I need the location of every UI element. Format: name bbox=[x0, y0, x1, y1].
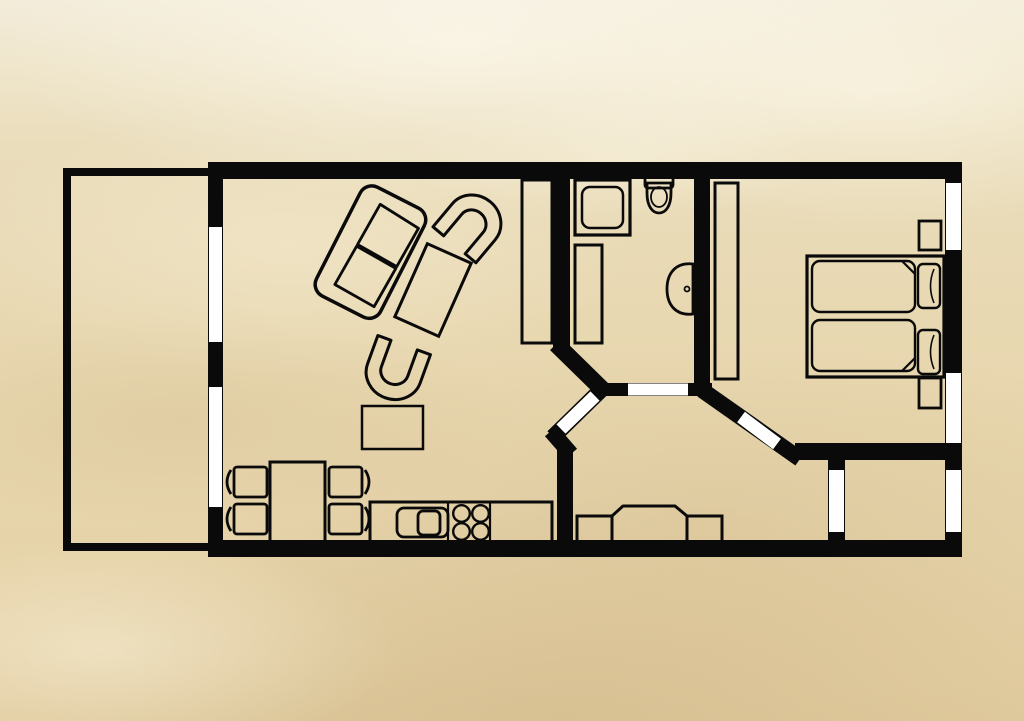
bedroom-storage-wall bbox=[795, 443, 962, 460]
bed-blanket-1 bbox=[812, 261, 915, 312]
bedroom-window-1 bbox=[946, 183, 961, 250]
sofa-cushion-1 bbox=[357, 203, 421, 267]
interior-walls bbox=[551, 162, 962, 550]
dining-chair-2 bbox=[234, 504, 267, 534]
balcony-bottom-wall bbox=[63, 543, 208, 551]
dining-chair-1 bbox=[234, 467, 267, 497]
stove-burner-3 bbox=[453, 523, 470, 540]
nightstand-top bbox=[919, 221, 941, 250]
exterior-walls bbox=[208, 162, 962, 557]
floorplan-svg bbox=[0, 0, 1024, 721]
balcony-door-opening-2 bbox=[209, 387, 222, 507]
bedroom-furniture bbox=[715, 183, 944, 408]
bathroom-fixtures bbox=[575, 175, 693, 343]
living-room-cabinet bbox=[522, 180, 552, 343]
sofa bbox=[311, 181, 431, 322]
living-room-furniture bbox=[311, 180, 552, 449]
dining-furniture bbox=[227, 462, 369, 542]
kitchen-furniture bbox=[370, 502, 552, 542]
pillow-2 bbox=[918, 330, 940, 374]
side-table bbox=[362, 406, 423, 449]
balcony-top-wall bbox=[63, 168, 208, 176]
hallway-furniture bbox=[577, 506, 722, 542]
armchair-bottom bbox=[359, 336, 431, 408]
washbasin-faucet bbox=[685, 287, 690, 292]
dining-chair-2-backrest bbox=[227, 507, 231, 531]
top-wall bbox=[208, 162, 962, 179]
bathroom-door-opening bbox=[628, 384, 688, 396]
sand-background bbox=[0, 0, 1024, 721]
pillow-1-crease bbox=[931, 269, 935, 303]
storage-window bbox=[946, 470, 961, 532]
balcony-walls bbox=[63, 168, 208, 551]
bedroom-wardrobe bbox=[715, 183, 738, 379]
pillow-1 bbox=[918, 264, 940, 308]
dining-chair-1-backrest bbox=[227, 470, 231, 494]
dining-chair-3 bbox=[329, 467, 362, 497]
balcony-door-opening-1 bbox=[209, 227, 222, 342]
dining-table bbox=[270, 462, 325, 542]
toilet-bowl-inner bbox=[651, 187, 667, 207]
armchair-bottom-outline bbox=[359, 336, 431, 408]
balcony-left-wall bbox=[63, 168, 71, 551]
dining-chair-4 bbox=[329, 504, 362, 534]
nightstand-bottom bbox=[919, 378, 941, 408]
hall-bench-center bbox=[612, 506, 687, 542]
stove-burner-2 bbox=[472, 505, 489, 522]
dining-chair-4-backrest bbox=[365, 507, 369, 531]
bath-bedroom-wall bbox=[694, 162, 710, 396]
bedroom-window-2 bbox=[946, 373, 961, 443]
stove-burner-1 bbox=[453, 505, 470, 522]
bed-blanket-2 bbox=[812, 320, 915, 371]
kitchen-sink-basin bbox=[418, 511, 440, 535]
stove-burner-4 bbox=[472, 523, 489, 540]
hall-bench-left bbox=[577, 516, 612, 542]
bathroom-cabinet bbox=[575, 245, 602, 343]
hall-bench-right bbox=[687, 516, 722, 542]
pillow-2-crease bbox=[931, 335, 935, 369]
hall-west-wall bbox=[557, 448, 573, 540]
shower-tray bbox=[582, 187, 623, 228]
living-bath-wall bbox=[553, 162, 570, 348]
living-hall-door-opening bbox=[561, 396, 595, 429]
double-bed-outline bbox=[807, 256, 944, 377]
storage-door-opening bbox=[829, 470, 844, 532]
dining-chair-3-backrest bbox=[365, 470, 369, 494]
